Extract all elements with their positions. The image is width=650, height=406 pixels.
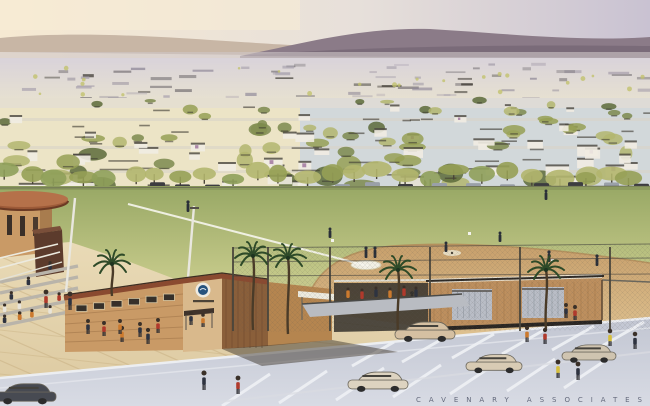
- pedestrian: [140, 333, 141, 337]
- pedestrian: [556, 366, 560, 373]
- pedestrian: [635, 344, 636, 349]
- distant-building: [488, 63, 495, 65]
- tree-shadow: [241, 154, 251, 155]
- tree-shadow: [256, 132, 264, 133]
- pedestrian: [138, 327, 142, 333]
- distant-tree: [392, 82, 397, 87]
- suburb-tree: [538, 116, 553, 122]
- tree-shadow: [432, 113, 438, 114]
- pedestrian: [526, 338, 527, 342]
- tree-canopy: [40, 170, 66, 188]
- suburb-tree: [145, 99, 156, 103]
- player: [545, 192, 548, 200]
- distant-building: [193, 70, 214, 72]
- clerestory-window: [164, 294, 175, 301]
- clerestory-window: [111, 301, 122, 308]
- house-roof: [85, 132, 96, 134]
- pedestrian: [557, 373, 558, 378]
- pedestrian: [156, 318, 160, 322]
- pedestrian: [574, 316, 575, 320]
- spectator: [388, 290, 391, 298]
- suburb-house: [283, 133, 297, 139]
- car-wheel: [600, 357, 608, 362]
- suburb-house: [134, 143, 147, 148]
- palm-trunk: [288, 258, 289, 334]
- tree-shadow: [89, 142, 97, 143]
- distant-tree: [498, 90, 503, 95]
- tree-shadow: [408, 142, 416, 143]
- car-wheel: [3, 398, 12, 404]
- tree-shadow: [493, 149, 502, 150]
- tree-canopy: [362, 161, 392, 177]
- palm-crown: [286, 256, 290, 260]
- suburb-house: [390, 106, 399, 112]
- distant-building: [77, 85, 94, 87]
- clerestory-window: [129, 298, 140, 305]
- spectator: [347, 288, 350, 291]
- pedestrian: [203, 323, 204, 327]
- ink-stroke: [349, 132, 365, 134]
- tree-shadow: [602, 139, 610, 140]
- distant-building: [112, 82, 129, 85]
- pedestrian: [44, 296, 48, 303]
- distant-tree: [442, 79, 445, 82]
- pedestrian: [68, 292, 73, 297]
- distant-building: [275, 77, 293, 79]
- pedestrian: [577, 375, 578, 380]
- house-roof: [505, 104, 511, 106]
- pedestrian: [146, 334, 150, 340]
- distant-tree: [358, 83, 361, 86]
- ink-stroke: [139, 125, 150, 127]
- distant-building: [151, 77, 172, 80]
- distant-building: [473, 67, 480, 69]
- ink-stroke: [75, 136, 94, 138]
- pedestrian: [104, 332, 105, 336]
- tree-canopy: [92, 170, 116, 187]
- backstop-fence: [233, 244, 650, 332]
- distant-building: [369, 71, 376, 73]
- pedestrian: [608, 335, 612, 342]
- ink-stroke: [363, 119, 379, 121]
- palm-crown: [251, 254, 255, 258]
- house-roof: [374, 128, 386, 130]
- spectator: [402, 288, 405, 296]
- pedestrian: [158, 329, 159, 333]
- player: [545, 190, 548, 193]
- distant-tree: [81, 92, 85, 96]
- pedestrian: [86, 319, 90, 323]
- pedestrian: [88, 330, 89, 334]
- pedestrian: [203, 385, 204, 390]
- ink-stroke: [292, 147, 319, 149]
- tree-shadow: [202, 119, 208, 120]
- car-wheel: [38, 398, 47, 404]
- distant-building: [387, 66, 397, 69]
- tree-shadow: [403, 165, 413, 166]
- pedestrian: [103, 332, 104, 336]
- distant-tree: [397, 83, 400, 86]
- tree-shadow: [63, 166, 74, 167]
- distant-tree: [498, 72, 502, 76]
- suburb-house: [619, 155, 631, 164]
- tree-shadow: [545, 124, 552, 125]
- crowd-figure: [48, 308, 52, 314]
- distant-tree: [627, 86, 632, 91]
- crowd-figure: [30, 312, 34, 318]
- tree-shadow: [115, 146, 124, 147]
- pedestrian: [147, 340, 148, 344]
- pedestrian: [157, 329, 158, 333]
- ink-stroke: [171, 131, 188, 133]
- house-roof: [577, 145, 597, 147]
- distant-building: [501, 89, 514, 91]
- pedestrian: [204, 385, 205, 390]
- distant-building: [113, 71, 131, 73]
- distant-building: [394, 64, 409, 66]
- distant-suburbs: [0, 58, 650, 102]
- house-roof: [390, 104, 399, 106]
- house-roof: [454, 115, 466, 117]
- suburb-house: [473, 140, 494, 146]
- tree-shadow: [281, 130, 288, 131]
- pedestrian: [608, 329, 613, 334]
- distant-building: [294, 64, 305, 67]
- house-roof: [299, 114, 311, 116]
- tree-shadow: [326, 136, 334, 137]
- tree-shadow: [261, 112, 267, 113]
- pedestrian: [236, 376, 241, 381]
- suburb-tree: [7, 141, 30, 150]
- distant-building: [556, 70, 575, 73]
- suburb-house: [559, 125, 568, 131]
- distant-building: [126, 92, 147, 94]
- pedestrian: [543, 328, 547, 332]
- crowd-figure: [18, 314, 22, 320]
- suburb-house: [374, 130, 386, 137]
- house-roof: [264, 158, 283, 160]
- ink-stroke: [643, 112, 650, 114]
- pedestrian: [45, 303, 46, 308]
- distant-tree: [278, 70, 281, 73]
- crowd-figure: [18, 303, 22, 309]
- distant-building: [245, 93, 256, 96]
- crowd-figure: [18, 311, 21, 314]
- pedestrian: [237, 389, 238, 394]
- spectator: [415, 287, 418, 290]
- distant-building: [352, 95, 372, 97]
- distant-tree: [581, 76, 586, 81]
- pedestrian: [564, 308, 568, 314]
- pedestrian: [609, 341, 610, 346]
- pedestrian: [202, 377, 206, 384]
- suburb-house: [10, 117, 23, 124]
- distant-tree: [64, 66, 69, 71]
- tree-shadow: [611, 115, 617, 116]
- ink-stroke: [410, 119, 420, 121]
- pedestrian: [544, 340, 545, 344]
- crowd-figure: [48, 261, 51, 264]
- suburb-tree: [161, 134, 178, 141]
- pedestrian: [633, 338, 637, 345]
- pedestrian: [138, 322, 142, 326]
- car-wheel: [438, 336, 446, 342]
- car-wheel: [391, 386, 399, 392]
- palm-crown: [110, 262, 114, 266]
- crowd-figure: [10, 291, 13, 294]
- house-roof: [527, 140, 543, 142]
- suburb-tree: [622, 113, 632, 119]
- player: [329, 230, 332, 238]
- crowd-figure: [18, 300, 21, 303]
- pedestrian: [575, 316, 576, 320]
- distant-building: [175, 89, 192, 92]
- spectator: [375, 287, 378, 290]
- pedestrian: [118, 319, 122, 323]
- distant-tree: [307, 91, 312, 96]
- spectator: [346, 290, 349, 298]
- house-roof: [625, 140, 637, 142]
- spectator: [360, 291, 363, 299]
- tree-shadow: [389, 162, 399, 163]
- pedestrian: [545, 340, 546, 344]
- pedestrian: [633, 332, 638, 337]
- palm-trunk: [546, 270, 547, 330]
- distant-building: [179, 75, 196, 78]
- car-wheel: [474, 368, 482, 374]
- pedestrian: [120, 330, 121, 334]
- house-accent: [270, 160, 274, 164]
- pedestrian: [525, 326, 529, 330]
- pedestrian: [527, 338, 528, 342]
- tree-canopy: [438, 164, 469, 175]
- pedestrian: [565, 314, 566, 318]
- house-roof: [559, 123, 568, 125]
- tree-canopy: [169, 171, 191, 183]
- house-accent: [195, 145, 198, 148]
- car-wheel: [506, 368, 514, 374]
- suburb-house: [624, 164, 638, 170]
- tree-canopy: [246, 162, 270, 179]
- crowd-figure: [30, 309, 33, 312]
- house-roof: [404, 147, 423, 149]
- spectator: [403, 286, 406, 289]
- distant-building: [163, 95, 169, 97]
- pedestrian: [564, 303, 568, 307]
- distant-building: [530, 78, 537, 80]
- palm-trunk: [398, 270, 399, 332]
- pedestrian: [44, 290, 49, 295]
- pedestrian: [525, 332, 529, 338]
- tree-shadow: [445, 178, 457, 179]
- pedestrian: [201, 370, 206, 375]
- tree-shadow: [383, 145, 392, 146]
- distant-building: [45, 77, 60, 79]
- suburb-tree: [384, 153, 405, 162]
- pedestrian: [87, 330, 88, 334]
- tree-shadow: [165, 141, 173, 142]
- tree-shadow: [1, 124, 8, 125]
- distant-building: [437, 94, 457, 96]
- palm-crown: [396, 268, 400, 272]
- pedestrian: [236, 382, 240, 389]
- distant-building: [523, 67, 531, 70]
- tree-shadow: [306, 131, 313, 132]
- pedestrian: [118, 324, 122, 330]
- tree-shadow: [187, 112, 193, 113]
- ink-stroke: [523, 159, 541, 161]
- car-body: [348, 380, 408, 389]
- house-roof: [606, 164, 625, 166]
- tree-shadow: [606, 108, 611, 109]
- pedestrian: [102, 321, 106, 325]
- house-accent: [302, 163, 306, 167]
- suburb-house: [454, 117, 466, 123]
- pedestrian: [146, 328, 150, 332]
- pedestrian: [578, 375, 579, 380]
- distant-building: [348, 92, 360, 95]
- suburb-house: [314, 150, 329, 155]
- pedestrian: [576, 368, 580, 375]
- suburb-house: [577, 146, 597, 156]
- ink-stroke: [72, 126, 84, 128]
- house-roof: [191, 143, 205, 145]
- suburb-tree: [132, 134, 144, 141]
- distant-tree: [121, 93, 124, 96]
- suburb-tree: [379, 138, 396, 146]
- distant-tree: [641, 75, 645, 79]
- distant-building: [241, 67, 249, 69]
- distant-tree: [416, 78, 419, 81]
- tree-canopy: [615, 171, 642, 186]
- tree-shadow: [159, 168, 170, 169]
- palm-crown: [544, 268, 548, 272]
- pedestrian: [121, 338, 122, 342]
- pedestrian: [122, 338, 123, 342]
- house-roof: [189, 152, 200, 154]
- pedestrian: [86, 324, 90, 330]
- distant-building: [638, 89, 650, 92]
- suburb-tree: [303, 125, 316, 131]
- pedestrian: [202, 323, 203, 327]
- player: [499, 232, 502, 235]
- suburb-house: [299, 116, 311, 121]
- player: [186, 200, 189, 203]
- distant-building: [412, 88, 432, 91]
- pedestrian: [558, 373, 559, 378]
- car-wheel: [404, 336, 412, 342]
- tree-canopy: [193, 168, 216, 180]
- tree-shadow: [357, 104, 362, 105]
- crowd-figure: [27, 280, 31, 286]
- tree-shadow: [347, 139, 355, 140]
- ink-stroke: [153, 110, 170, 112]
- distant-tree: [238, 67, 241, 70]
- pedestrian: [69, 305, 70, 310]
- tree-shadow: [94, 106, 99, 107]
- clerestory-window: [94, 303, 105, 310]
- pedestrian: [566, 314, 567, 318]
- tree-shadow: [341, 156, 351, 157]
- distant-building: [59, 70, 69, 73]
- tree-canopy: [469, 166, 495, 182]
- distant-building: [531, 63, 546, 66]
- pedestrian: [238, 389, 239, 394]
- pedestrian: [189, 316, 193, 321]
- suburb-tree: [154, 159, 175, 169]
- ink-stroke: [475, 160, 499, 162]
- crowd-figure: [48, 305, 51, 308]
- pedestrian: [102, 326, 106, 332]
- tree-canopy: [222, 174, 244, 185]
- house-roof: [566, 107, 574, 109]
- distant-building: [22, 88, 36, 91]
- crowd-figure: [3, 314, 6, 317]
- player: [187, 204, 190, 213]
- crowd-figure: [57, 295, 61, 301]
- ink-stroke: [480, 128, 502, 130]
- house-roof: [283, 132, 297, 134]
- ink-stroke: [495, 143, 510, 145]
- ink-stroke: [577, 136, 596, 138]
- pedestrian: [634, 344, 635, 349]
- player: [499, 234, 502, 242]
- pedestrian: [189, 311, 193, 315]
- distant-tree: [80, 82, 84, 86]
- tree-shadow: [566, 132, 574, 133]
- ink-stroke: [375, 140, 386, 142]
- distant-building: [454, 91, 467, 93]
- distant-tree: [82, 78, 86, 82]
- tree-shadow: [423, 112, 429, 113]
- watercolor-rendering: CAVENARY ASSOCIATES: [0, 0, 650, 406]
- suburb-house: [218, 164, 236, 172]
- clerestory-window: [76, 305, 87, 312]
- house-accent: [458, 118, 460, 120]
- spectator: [389, 288, 392, 291]
- ink-stroke: [108, 160, 138, 162]
- pedestrian: [543, 334, 547, 340]
- pedestrian: [573, 305, 577, 309]
- house-roof: [27, 150, 37, 152]
- pedestrian: [576, 362, 581, 367]
- tree-canopy: [269, 165, 287, 183]
- tree-shadow: [609, 142, 617, 143]
- palm-trunk: [253, 256, 254, 330]
- pedestrian: [68, 298, 72, 305]
- suburb-tree: [380, 100, 394, 104]
- tree-canopy: [322, 164, 344, 181]
- player: [329, 228, 332, 231]
- car-body: [562, 352, 616, 360]
- distant-building: [296, 95, 315, 97]
- house-roof: [546, 164, 569, 166]
- tree-shadow: [548, 107, 553, 108]
- distant-building: [376, 76, 396, 78]
- pedestrian: [573, 310, 577, 316]
- distant-tree: [33, 74, 38, 79]
- suburb-house: [625, 142, 637, 149]
- spectator: [414, 289, 417, 297]
- distant-building: [150, 86, 172, 88]
- house-roof: [619, 154, 631, 156]
- suburb-house: [139, 148, 159, 153]
- car-wheel: [570, 357, 578, 362]
- tree-shadow: [509, 137, 517, 138]
- crowd-figure: [10, 294, 14, 300]
- house-roof: [73, 154, 91, 156]
- player: [445, 242, 448, 245]
